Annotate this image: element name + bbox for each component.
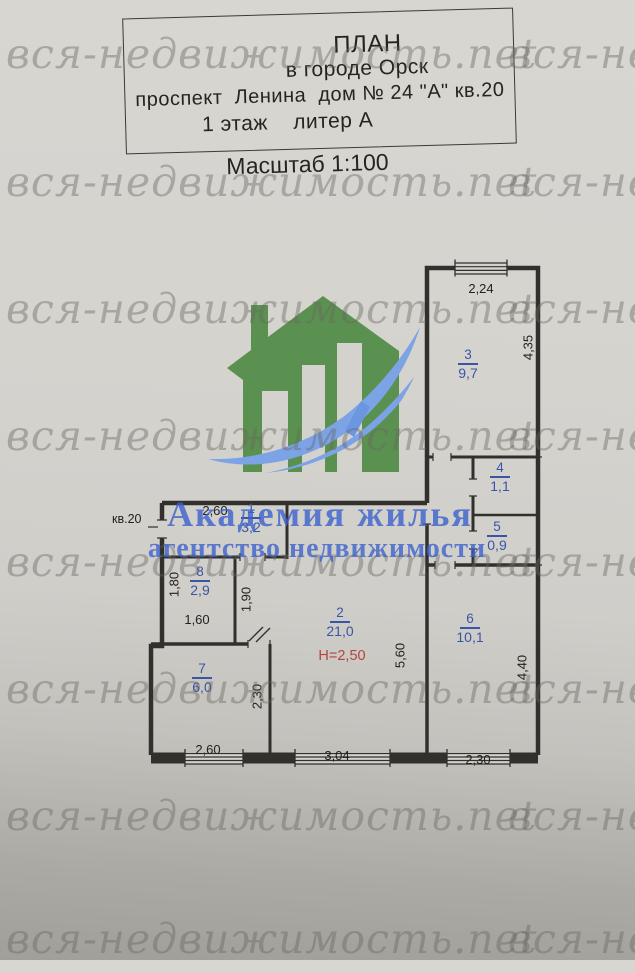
apartment-number-label: кв.20	[112, 512, 142, 526]
dim-room3-top: 2,24	[459, 281, 503, 296]
room-label-4: 41,1	[478, 461, 522, 494]
dim-room8-bottom: 1,60	[175, 612, 219, 627]
agency-logo-icon	[205, 283, 420, 488]
ceiling-height-note: Н=2,50	[307, 648, 377, 664]
room-label-8: 82,9	[178, 565, 222, 598]
photographed-floor-plan-document: { "watermark": { "text": "вся-недвижимос…	[0, 0, 635, 960]
dim-room7-bottom: 2,60	[186, 742, 230, 757]
dim-corridor-right: 1,90	[239, 578, 254, 622]
title-block: ПЛАН в городе Орск проспект Ленина дом №…	[122, 8, 517, 155]
dim-room6-right: 4,40	[515, 646, 530, 690]
dim-room2-right: 5,60	[393, 634, 408, 678]
scale-label: Масштаб 1:100	[210, 148, 406, 180]
room-label-6: 610,1	[448, 612, 492, 645]
watermark-row-8: вся-недвижимость.netвся-недвижимость.net	[0, 915, 635, 973]
agency-tagline: агентство недвижимости	[128, 534, 506, 564]
dim-room6-bottom: 2,30	[456, 752, 500, 767]
dim-room7-right: 2,30	[250, 675, 265, 719]
agency-name: Академия жилья	[150, 495, 490, 533]
dim-room8-left: 1,80	[167, 563, 182, 607]
watermark-row-7: вся-недвижимость.netвся-недвижимость.net	[0, 792, 635, 850]
dim-room2-bottom: 3,04	[315, 748, 359, 763]
room-label-3: 39,7	[446, 348, 490, 381]
room-label-7: 76,0	[180, 662, 224, 695]
room-label-2: 221,0	[318, 606, 362, 639]
dim-room3-right: 4,35	[521, 326, 536, 370]
